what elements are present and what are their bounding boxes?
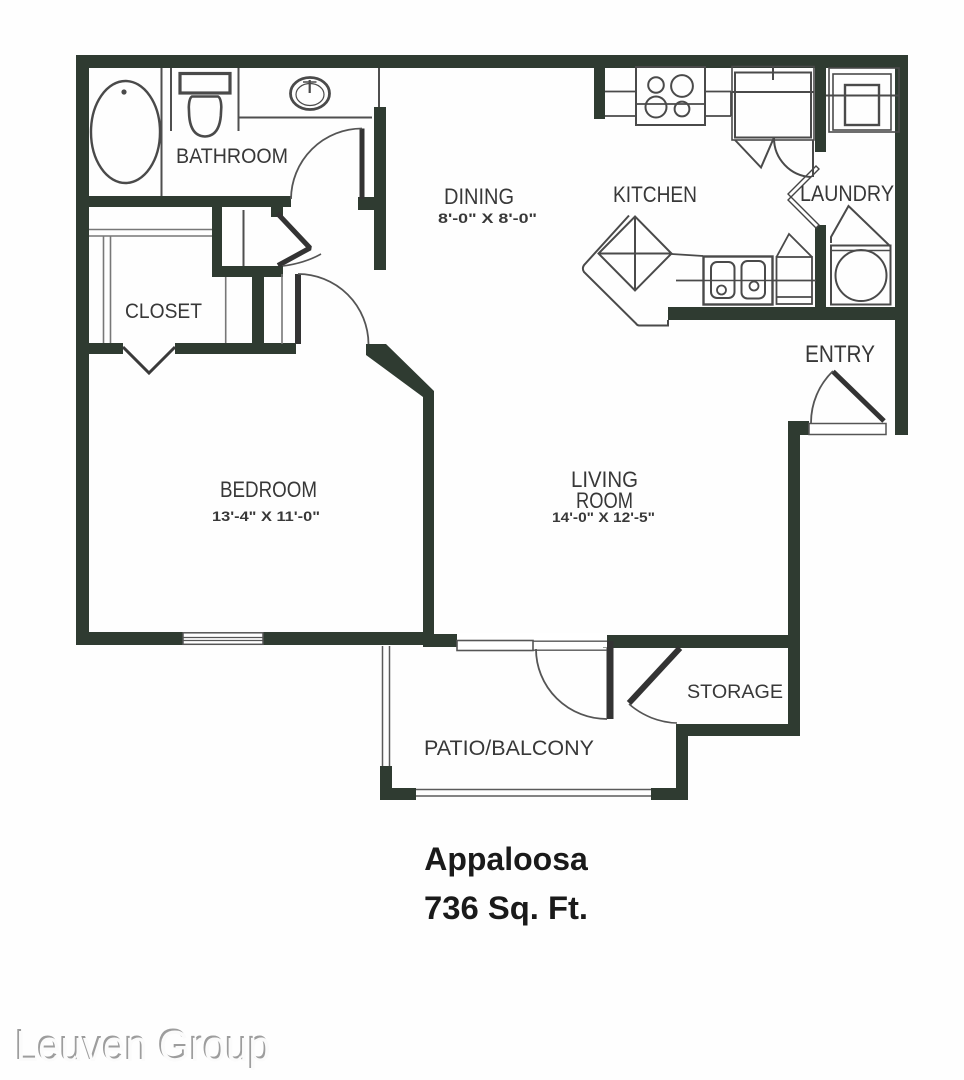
svg-text:14'-0" X 12'-5": 14'-0" X 12'-5" xyxy=(552,509,655,525)
svg-text:PATIO/BALCONY: PATIO/BALCONY xyxy=(424,737,594,760)
svg-text:Leuven Group: Leuven Group xyxy=(16,1022,271,1071)
svg-text:13'-4" X 11'-0": 13'-4" X 11'-0" xyxy=(212,508,320,524)
svg-text:STORAGE: STORAGE xyxy=(687,682,783,703)
svg-text:ENTRY: ENTRY xyxy=(805,341,875,368)
svg-text:BEDROOM: BEDROOM xyxy=(220,477,317,502)
svg-text:736 Sq. Ft.: 736 Sq. Ft. xyxy=(424,890,588,926)
svg-text:KITCHEN: KITCHEN xyxy=(613,182,697,207)
svg-text:8'-0" X 8'-0": 8'-0" X 8'-0" xyxy=(438,210,537,226)
svg-text:Appaloosa: Appaloosa xyxy=(424,841,588,877)
svg-text:BATHROOM: BATHROOM xyxy=(176,145,288,168)
svg-text:LAUNDRY: LAUNDRY xyxy=(800,181,894,206)
svg-text:CLOSET: CLOSET xyxy=(125,300,202,323)
svg-text:DINING: DINING xyxy=(444,184,514,209)
